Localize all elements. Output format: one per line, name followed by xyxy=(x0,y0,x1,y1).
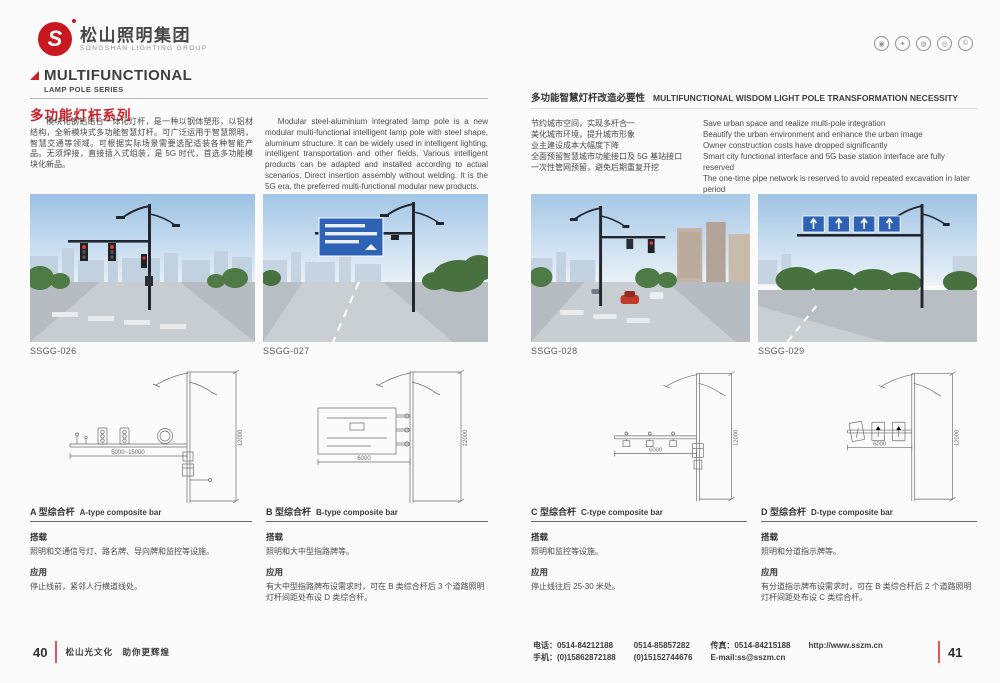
intro-paragraph-en: Modular steel-aluminium integrated lamp … xyxy=(265,117,488,193)
intro-paragraph-cn: 模块化钢铝结合一体化灯杆，是一种以钢体塑形，以铝材结构，全新模块式多功能智慧灯杆… xyxy=(30,117,253,193)
point-cn: 节约城市空间，实现多杆合一 xyxy=(531,118,703,129)
application-label: 应用 xyxy=(266,566,488,578)
street-photo-ssgg-026 xyxy=(30,194,255,342)
point-en: The one-time pipe network is reserved to… xyxy=(703,173,977,195)
contact-mobile2: (0)15152744676 xyxy=(634,652,693,664)
necessity-header: 多功能智慧灯杆改造必要性 MULTIFUNCTIONAL WISDOM LIGH… xyxy=(531,90,977,109)
footer-red-bar xyxy=(55,641,57,663)
contact-email: E-mail:ss@sszm.cn xyxy=(710,652,790,664)
point-cn: 业主建设成本大幅度下降 xyxy=(531,140,703,151)
load-label: 搭载 xyxy=(761,531,977,543)
logo-name-en: SONGSHAN LIGHTING GROUP xyxy=(80,45,208,52)
dim-horizontal: 6000 xyxy=(873,442,887,448)
photo-card: SSGG-026 xyxy=(30,194,255,356)
necessity-points: 节约城市空间，实现多杆合一 美化城市环境，提升城市形象 业主建设成本大幅度下降 … xyxy=(531,118,977,195)
series-subtitle-en: LAMP POLE SERIES xyxy=(44,85,192,94)
footer-red-bar xyxy=(938,641,940,663)
load-label: 搭载 xyxy=(266,531,488,543)
necessity-title-en: MULTIFUNCTIONAL WISDOM LIGHT POLE TRANSF… xyxy=(653,93,958,103)
drawing-d-type: 6000 12000 xyxy=(758,360,977,503)
load-text: 照明和分道指示牌等。 xyxy=(761,546,977,557)
photo-code: SSGG-029 xyxy=(758,346,977,356)
photo-code: SSGG-026 xyxy=(30,346,255,356)
photo-card: SSGG-028 xyxy=(531,194,750,356)
point-en: Smart city functional interface and 5G b… xyxy=(703,151,977,173)
load-text: 照明和交通信号灯、路名牌、导向牌和监控等设施。 xyxy=(30,546,252,557)
cert-badge-icon: © xyxy=(958,36,973,51)
contact-tel: 电话：0514-84212188 xyxy=(533,640,616,652)
dim-vertical: 12000 xyxy=(463,429,469,446)
series-title-en: MULTIFUNCTIONAL xyxy=(44,68,192,83)
point-cn: 美化城市环境，提升城市形象 xyxy=(531,129,703,140)
left-footer: 40 松山光文化 助你更辉煌 xyxy=(33,641,170,663)
photo-card: SSGG-029 xyxy=(758,194,977,356)
left-page: MULTIFUNCTIONAL LAMP POLE SERIES 多功能灯杆系列… xyxy=(30,68,488,640)
section-title-en: C-type composite bar xyxy=(581,508,663,517)
page-number-right: 41 xyxy=(948,645,962,660)
left-photo-grid: SSGG-026 xyxy=(30,194,488,356)
intro-paragraphs: 模块化钢铝结合一体化灯杆，是一种以钢体塑形，以铝材结构，全新模块式多功能智慧灯杆… xyxy=(30,117,488,193)
street-photo-ssgg-029 xyxy=(758,194,977,342)
left-spec-sections: A 型综合杆 A-type composite bar 搭载 照明和交通信号灯、… xyxy=(30,505,488,603)
trademark-dot-icon xyxy=(72,19,76,23)
dim-horizontal: 6000 xyxy=(649,447,663,453)
load-label: 搭载 xyxy=(531,531,747,543)
logo-name-cn: 松山照明集团 xyxy=(80,27,208,45)
contact-fax: 传真：0514-84215188 xyxy=(710,640,790,652)
contact-tel2: 0514-85857282 xyxy=(634,640,693,652)
spec-section-c: C 型综合杆 C-type composite bar 搭载 照明和监控等设施。… xyxy=(531,505,747,603)
application-text: 有分道指示牌布设需求时，可在 B 类综合杆后 2 个道路照明灯杆间距处布设 C … xyxy=(761,581,977,603)
certification-badges: ◉ ✦ ◍ ◎ © xyxy=(874,36,973,51)
page-number-left: 40 xyxy=(33,645,47,660)
spec-section-b: B 型综合杆 B-type composite bar 搭载 照明和大中型指路牌… xyxy=(266,505,488,603)
section-title-cn: A 型综合杆 xyxy=(30,505,75,518)
section-title-en: B-type composite bar xyxy=(316,508,398,517)
load-label: 搭载 xyxy=(30,531,252,543)
footer-slogan: 松山光文化 助你更辉煌 xyxy=(65,646,170,658)
dim-horizontal: 5000~15000 xyxy=(111,450,145,456)
application-text: 停止线前，紧邻人行横道线处。 xyxy=(30,581,252,592)
series-header: MULTIFUNCTIONAL LAMP POLE SERIES 多功能灯杆系列 xyxy=(30,68,488,124)
section-title-en: D-type composite bar xyxy=(811,508,893,517)
red-triangle-icon xyxy=(30,71,39,80)
contact-mobile: 手机：(0)15862872188 xyxy=(533,652,616,664)
application-text: 停止线往后 25-30 米处。 xyxy=(531,581,747,592)
right-spec-sections: C 型综合杆 C-type composite bar 搭载 照明和监控等设施。… xyxy=(531,505,977,603)
spec-section-d: D 型综合杆 D-type composite bar 搭载 照明和分道指示牌等… xyxy=(761,505,977,603)
dim-horizontal: 6000 xyxy=(357,456,371,462)
logo-swirl-icon: S xyxy=(38,22,72,56)
section-title-en: A-type composite bar xyxy=(80,508,162,517)
load-text: 照明和大中型指路牌等。 xyxy=(266,546,488,557)
drawing-b-type: 6000 12000 xyxy=(263,360,488,503)
dim-vertical: 12000 xyxy=(733,429,739,446)
street-photo-ssgg-028 xyxy=(531,194,750,342)
application-label: 应用 xyxy=(761,566,977,578)
highway-guide-sign xyxy=(319,218,383,256)
contact-info: 电话：0514-84212188 手机：(0)15862872188 0514-… xyxy=(533,640,883,664)
point-en: Beautify the urban environment and enhan… xyxy=(703,129,977,140)
section-title-cn: B 型综合杆 xyxy=(266,505,311,518)
dim-vertical: 12000 xyxy=(238,429,244,446)
application-text: 有大中型指路牌布设需求时，可在 B 类综合杆后 3 个道路照明灯杆间距处布设 D… xyxy=(266,581,488,603)
photo-card: SSGG-027 xyxy=(263,194,488,356)
point-en: Save urban space and realize multi-pole … xyxy=(703,118,977,129)
cert-badge-icon: ✦ xyxy=(895,36,910,51)
right-photo-grid: SSGG-028 xyxy=(531,194,977,356)
series-divider xyxy=(30,98,488,99)
logo-letter: S xyxy=(48,28,63,50)
load-text: 照明和监控等设施。 xyxy=(531,546,747,557)
points-column-cn: 节约城市空间，实现多杆合一 美化城市环境，提升城市形象 业主建设成本大幅度下降 … xyxy=(531,118,703,195)
contact-website: http://www.sszm.cn xyxy=(809,640,883,652)
section-title-cn: D 型综合杆 xyxy=(761,505,806,518)
company-logo: S 松山照明集团 SONGSHAN LIGHTING GROUP xyxy=(38,22,208,56)
cert-badge-icon: ◎ xyxy=(937,36,952,51)
photo-code: SSGG-027 xyxy=(263,346,488,356)
left-drawings: 5000~15000 12000 6000 12000 xyxy=(30,360,488,503)
photo-code: SSGG-028 xyxy=(531,346,750,356)
section-title-cn: C 型综合杆 xyxy=(531,505,576,518)
right-footer: 41 xyxy=(938,641,962,663)
right-page: 多功能智慧灯杆改造必要性 MULTIFUNCTIONAL WISDOM LIGH… xyxy=(531,68,977,640)
application-label: 应用 xyxy=(531,566,747,578)
cert-badge-icon: ◍ xyxy=(916,36,931,51)
points-column-en: Save urban space and realize multi-pole … xyxy=(703,118,977,195)
spec-section-a: A 型综合杆 A-type composite bar 搭载 照明和交通信号灯、… xyxy=(30,505,252,603)
application-label: 应用 xyxy=(30,566,252,578)
point-cn: 全面预留智慧城市功能接口及 5G 基站接口 xyxy=(531,151,703,162)
point-en: Owner construction costs have dropped si… xyxy=(703,140,977,151)
drawing-c-type: 6000 12000 xyxy=(531,360,750,503)
cert-badge-icon: ◉ xyxy=(874,36,889,51)
street-photo-ssgg-027 xyxy=(263,194,488,342)
right-drawings: 6000 12000 6000 12000 xyxy=(531,360,977,503)
point-cn: 一次性管网预留，避免后期重复开挖 xyxy=(531,162,703,173)
dim-vertical: 12000 xyxy=(955,429,961,446)
necessity-title-cn: 多功能智慧灯杆改造必要性 xyxy=(531,90,645,104)
drawing-a-type: 5000~15000 12000 xyxy=(30,360,255,503)
